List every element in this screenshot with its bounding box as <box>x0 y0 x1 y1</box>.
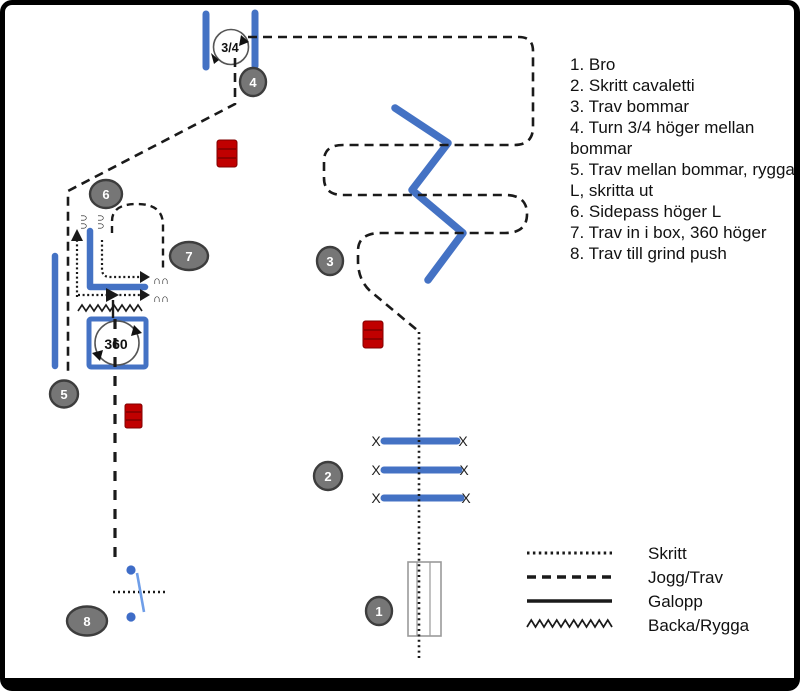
hoof-pair-icon: ∩∩ <box>78 214 90 230</box>
arrow-right-icon <box>140 289 150 301</box>
legend: Skritt Jogg/Trav Galopp Backa/Rygga <box>527 544 750 635</box>
turn-360-label: 360 <box>104 336 128 352</box>
marker-number: 3 <box>326 254 333 269</box>
path-jogg-arch <box>112 204 163 271</box>
marker-5: 5 <box>50 381 78 408</box>
obstacle-2-cavaletti: X X X X X X <box>371 433 471 506</box>
path-backa-zigzag <box>78 305 142 311</box>
instruction-item: 6. Sidepass höger L <box>570 201 800 222</box>
instruction-item: 3. Trav bommar <box>570 96 800 117</box>
course-diagram-page: X X X X X X <box>0 0 800 691</box>
legend-label: Jogg/Trav <box>648 568 723 587</box>
legend-line-galopp: Galopp <box>527 592 703 611</box>
bridge-outline <box>408 562 441 636</box>
marker-number: 7 <box>185 249 192 264</box>
path-jogg-left <box>68 58 235 372</box>
turn-34-label: 3/4 <box>221 41 238 55</box>
marker-3: 3 <box>317 247 343 275</box>
instruction-item: 5. Trav mellan bommar, rygga L, skritta … <box>570 159 800 201</box>
marker-number: 6 <box>102 187 109 202</box>
cavaletti-x: X <box>371 490 381 506</box>
path-jogg-serpentine <box>248 37 533 330</box>
marker-2: 2 <box>314 462 342 490</box>
hoof-pair-icon: ∩∩ <box>153 293 169 305</box>
arrow-up-icon <box>71 229 83 241</box>
marker-number: 1 <box>375 604 382 619</box>
arrow-right-icon <box>140 271 150 283</box>
instruction-item: 1. Bro <box>570 54 800 75</box>
instruction-list: 1. Bro 2. Skritt cavaletti 3. Trav bomma… <box>570 54 800 264</box>
cavaletti-x: X <box>371 433 381 449</box>
path-skritt-l-out-upper <box>102 240 141 277</box>
marker-7: 7 <box>170 242 208 270</box>
legend-line-skritt: Skritt <box>527 544 687 563</box>
legend-label: Skritt <box>648 544 687 563</box>
obstacle-8-gate <box>126 565 144 621</box>
instruction-item: 7. Trav in i box, 360 höger <box>570 222 800 243</box>
legend-line-jogg-trav: Jogg/Trav <box>527 568 723 587</box>
marker-1: 1 <box>366 597 392 625</box>
cavaletti-x: X <box>459 462 469 478</box>
cavaletti-x: X <box>371 462 381 478</box>
marker-8: 8 <box>67 607 107 636</box>
marker-number: 2 <box>324 469 331 484</box>
instruction-item: 8. Trav till grind push <box>570 243 800 264</box>
barrel <box>125 404 142 428</box>
hoof-pair-icon: ∩∩ <box>153 275 169 287</box>
obstacle-1-bridge <box>408 562 441 636</box>
gate-post-dot <box>126 565 135 574</box>
cavaletti-x: X <box>458 433 468 449</box>
marker-number: 4 <box>249 75 257 90</box>
path-arrowheads <box>71 229 150 302</box>
instruction-item: 2. Skritt cavaletti <box>570 75 800 96</box>
marker-4: 4 <box>240 68 266 96</box>
instruction-item: 4. Turn 3/4 höger mellan bommar <box>570 117 800 159</box>
l-shape-poles <box>90 231 145 287</box>
barrel <box>363 321 383 348</box>
gate-post-dot <box>126 612 135 621</box>
hoof-pair-icon: ∩∩ <box>95 214 107 230</box>
marker-6: 6 <box>90 180 122 208</box>
marker-number: 8 <box>83 614 90 629</box>
cavaletti-x: X <box>461 490 471 506</box>
legend-label: Galopp <box>648 592 703 611</box>
barrel <box>217 140 237 167</box>
marker-number: 5 <box>60 387 67 402</box>
legend-label: Backa/Rygga <box>648 616 750 635</box>
legend-line-backa-rygga: Backa/Rygga <box>527 616 750 635</box>
